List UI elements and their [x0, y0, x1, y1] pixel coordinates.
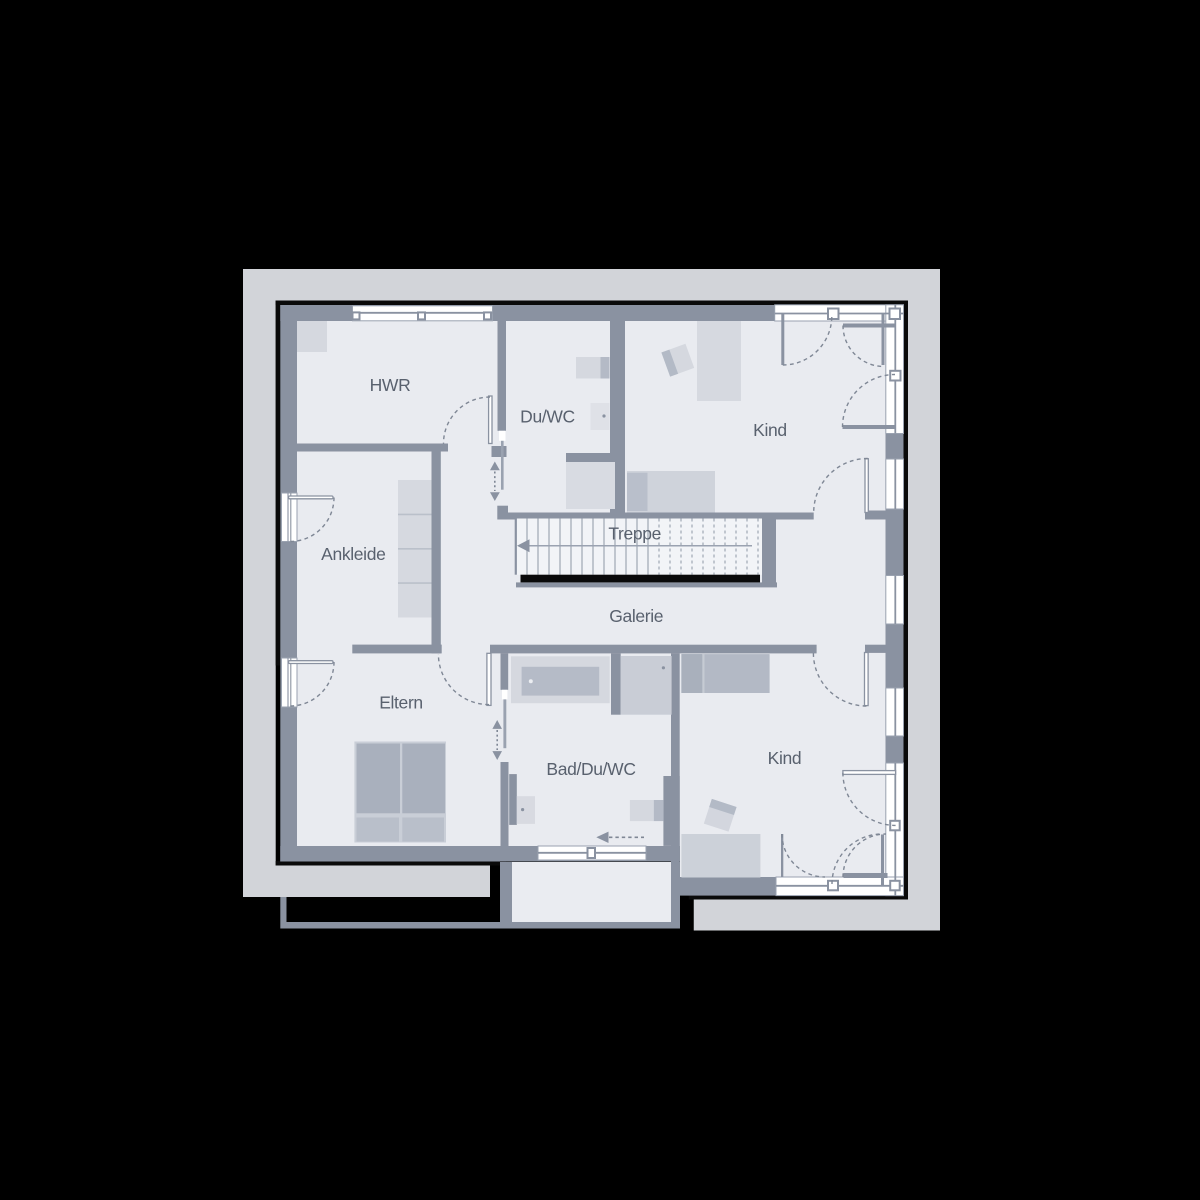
svg-text:Eltern: Eltern: [379, 693, 423, 713]
svg-text:Kind: Kind: [753, 420, 787, 440]
svg-text:HWR: HWR: [370, 375, 411, 395]
svg-text:Du/WC: Du/WC: [520, 407, 575, 427]
svg-text:Galerie: Galerie: [609, 606, 663, 626]
svg-text:Ankleide: Ankleide: [321, 544, 385, 564]
svg-text:Kind: Kind: [768, 748, 802, 768]
svg-text:Bad/Du/WC: Bad/Du/WC: [546, 759, 635, 779]
svg-text:Treppe: Treppe: [608, 524, 661, 544]
